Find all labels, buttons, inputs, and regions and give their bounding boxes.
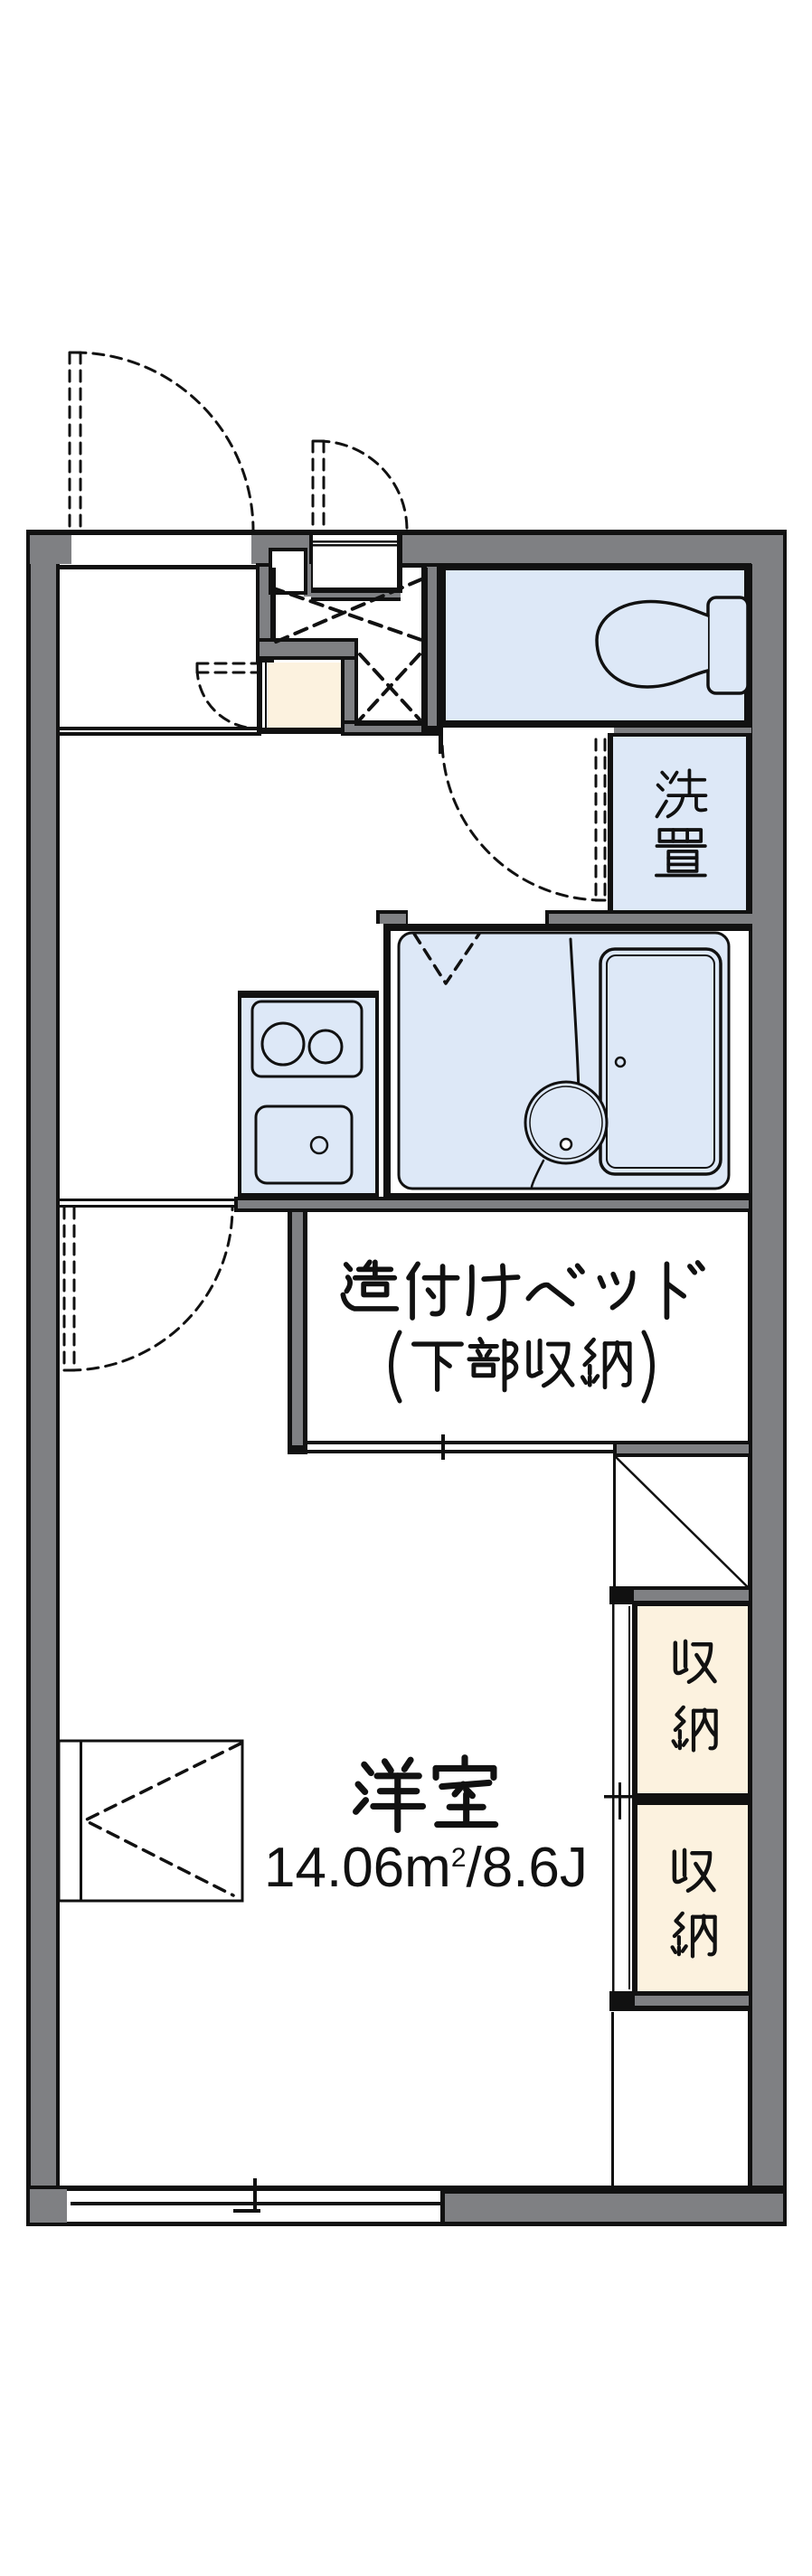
svg-text:14.06m2/8.6J: 14.06m2/8.6J [264, 1837, 588, 1899]
